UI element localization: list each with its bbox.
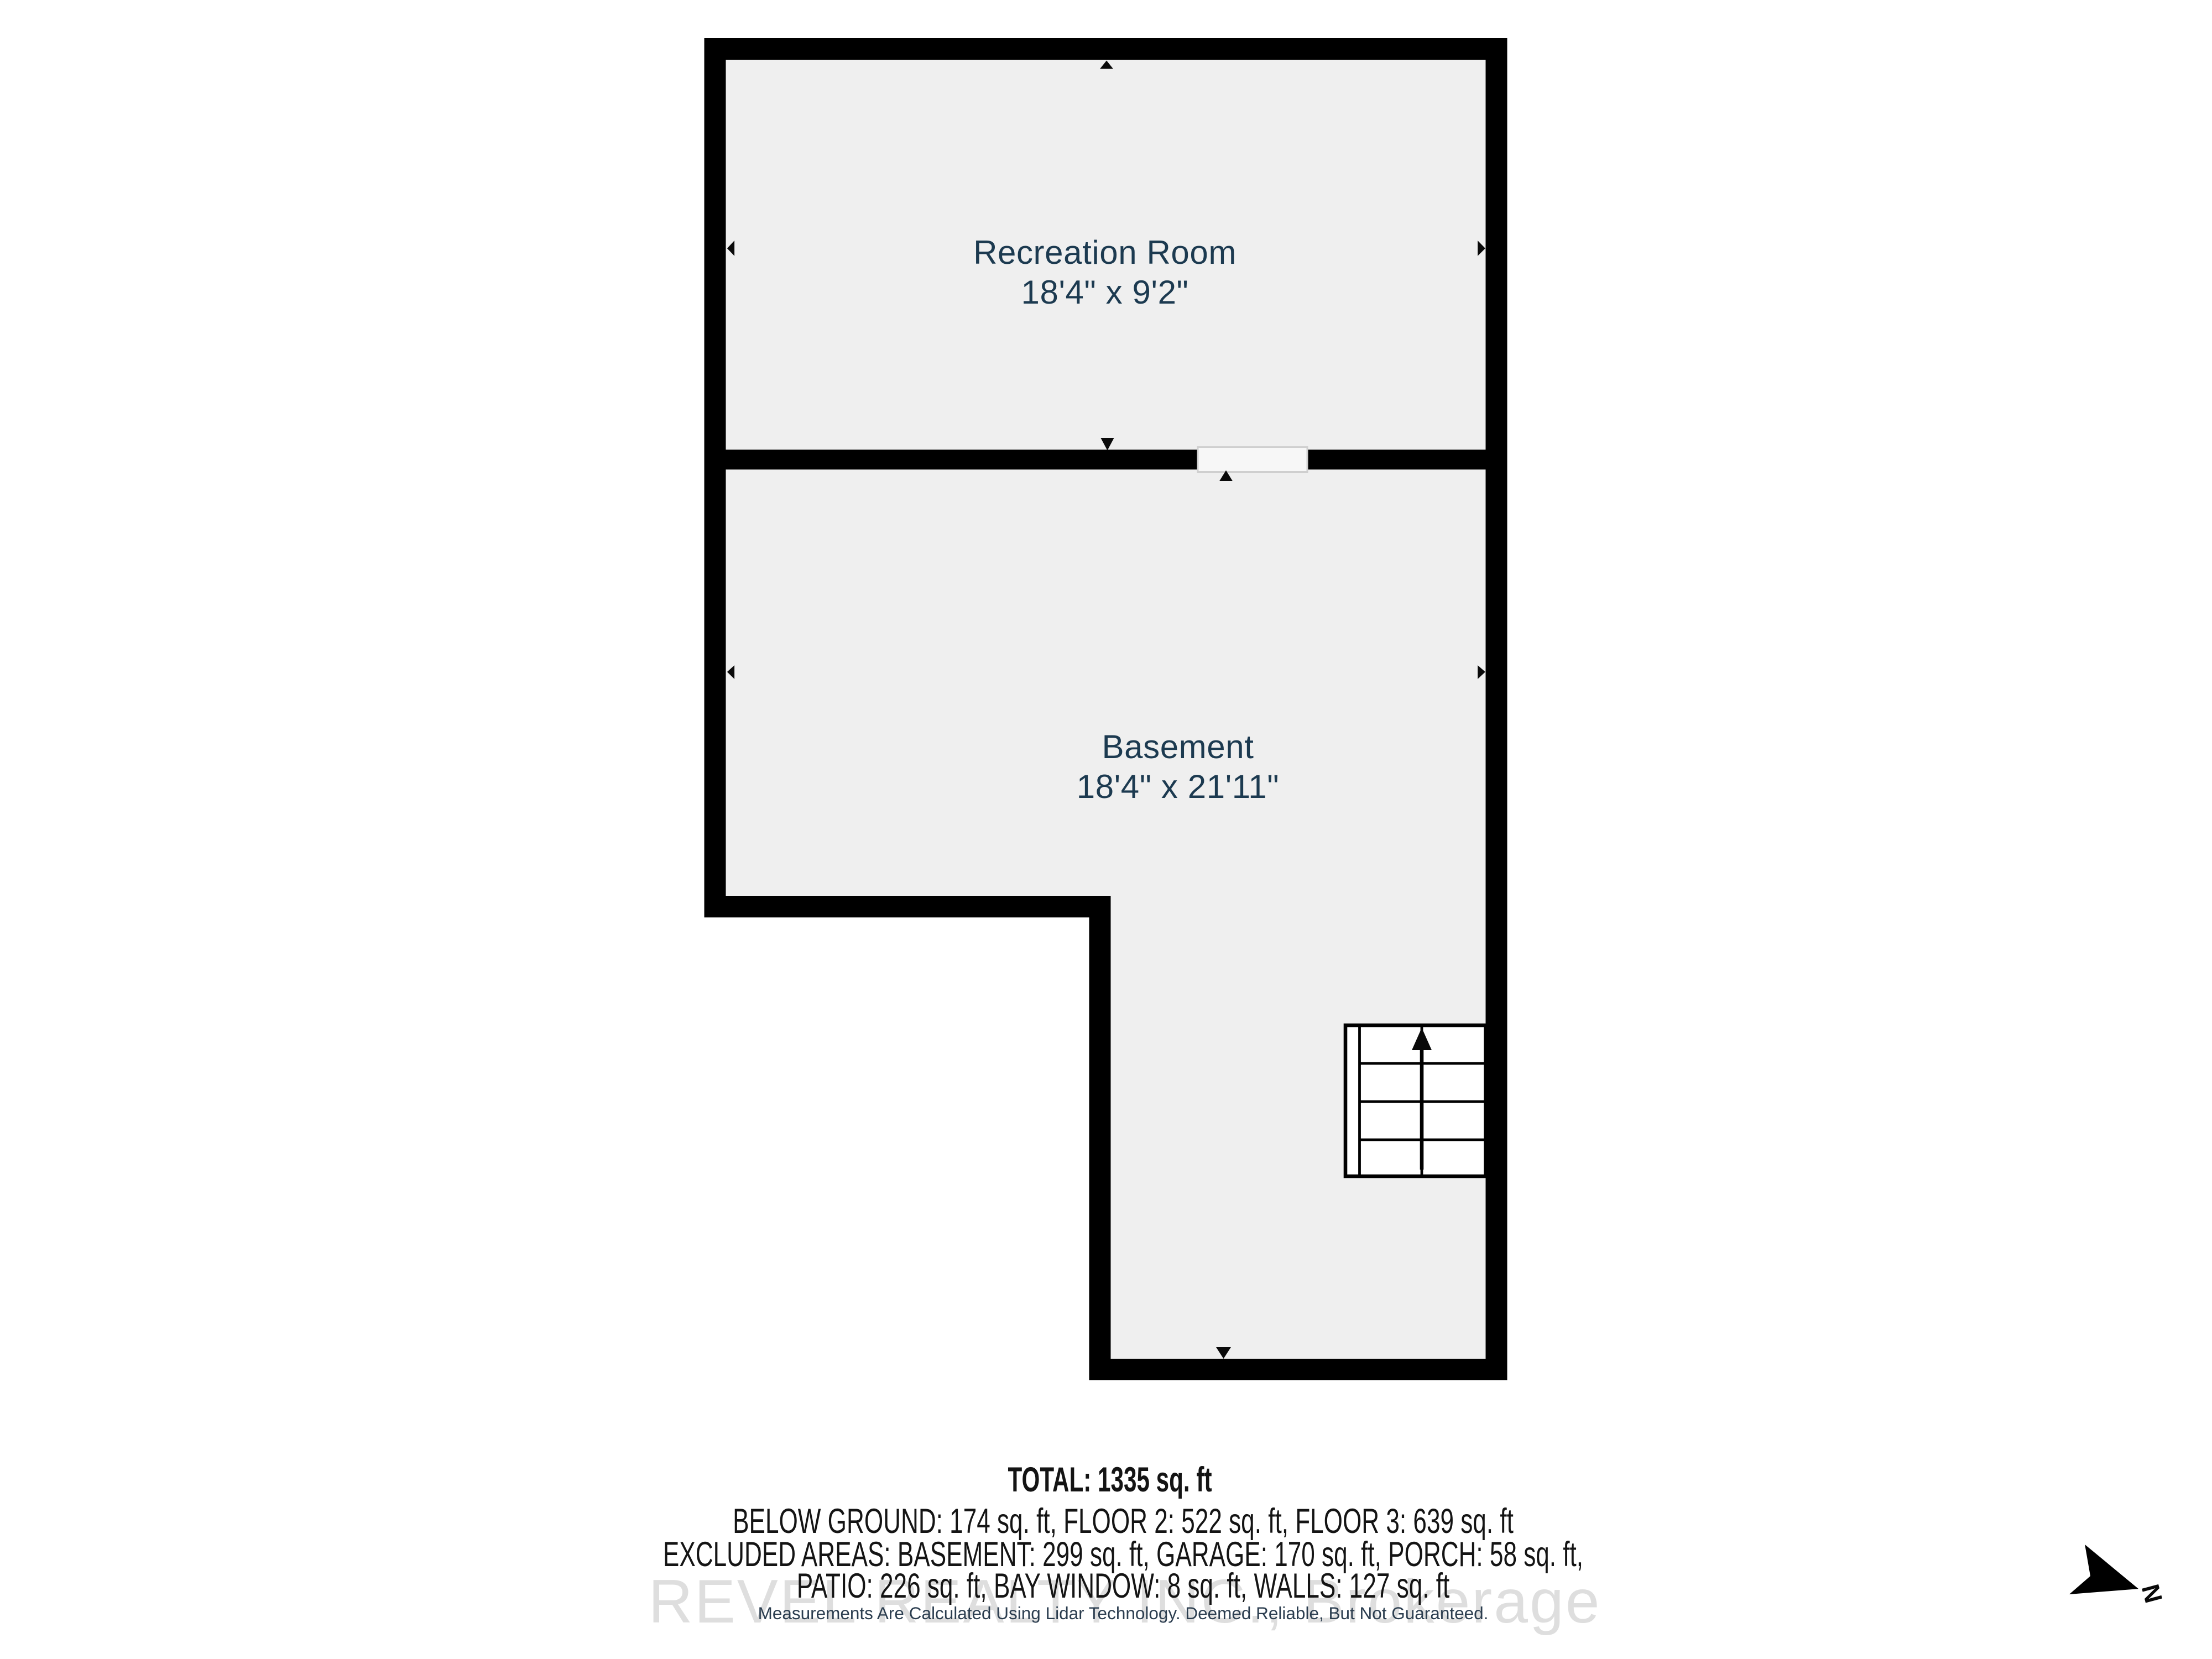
north-label: N <box>2136 1581 2168 1606</box>
total-area-line: TOTAL: 1335 sq. ft <box>443 1463 1777 1500</box>
recreation-room-name: Recreation Room <box>773 236 1437 275</box>
floor-plan-page: N Recreation Room 18'4" x 9'2" Basement … <box>0 0 2212 1659</box>
recreation-room-label: Recreation Room 18'4" x 9'2" <box>773 236 1437 314</box>
basement-name: Basement <box>846 730 1510 769</box>
measurement-disclaimer: Measurements Are Calculated Using Lidar … <box>128 1603 2119 1626</box>
door-opening <box>1198 447 1307 472</box>
recreation-room-dimensions: 18'4" x 9'2" <box>773 275 1437 314</box>
basement-label: Basement 18'4" x 21'11" <box>846 730 1510 808</box>
basement-dimensions: 18'4" x 21'11" <box>846 769 1510 808</box>
excluded-areas-line-2: PATIO: 226 sq. ft, BAY WINDOW: 8 sq. ft,… <box>426 1569 1820 1606</box>
staircase <box>1345 1025 1485 1176</box>
